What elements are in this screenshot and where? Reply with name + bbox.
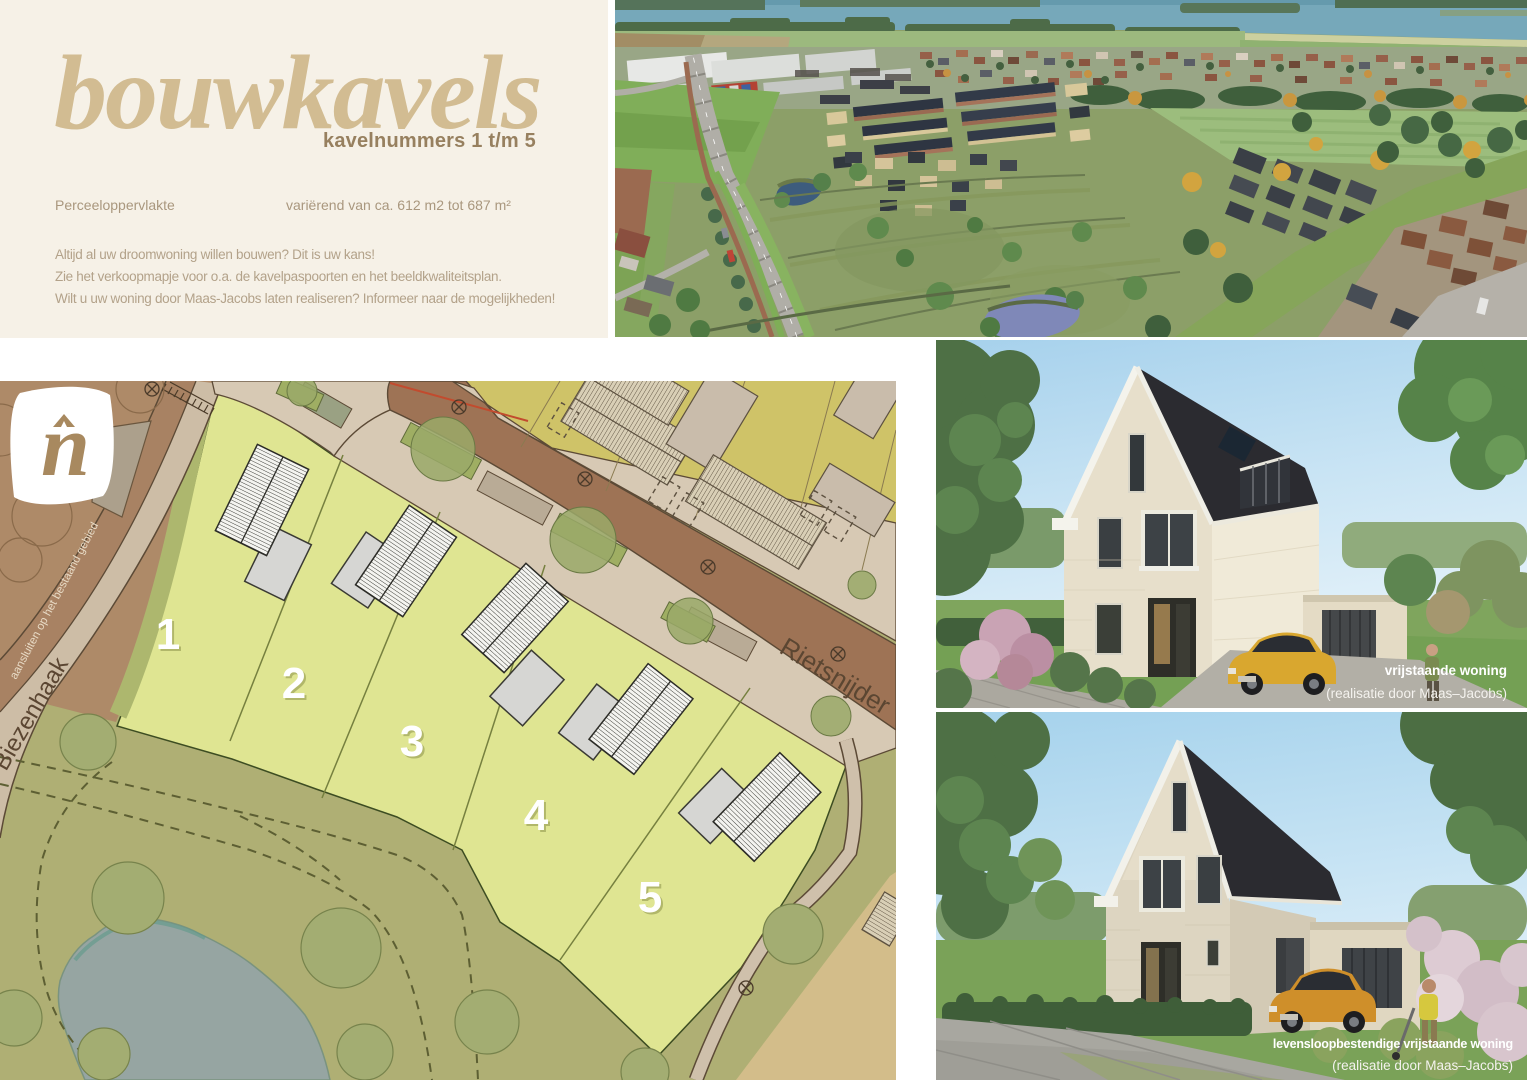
svg-text:levensloopbestendige vrijstaan: levensloopbestendige vrijstaande woning [1273, 1037, 1513, 1051]
svg-text:n: n [41, 398, 90, 495]
svg-text:3: 3 [400, 717, 424, 766]
svg-text:4: 4 [524, 791, 549, 840]
svg-text:5: 5 [638, 873, 662, 922]
svg-text:(realisatie door Maas–Jacobs): (realisatie door Maas–Jacobs) [1326, 686, 1507, 701]
svg-text:2: 2 [282, 659, 306, 708]
svg-text:1: 1 [156, 610, 180, 659]
svg-text:(realisatie door Maas–Jacobs): (realisatie door Maas–Jacobs) [1332, 1058, 1513, 1073]
svg-text:vrijstaande woning: vrijstaande woning [1385, 663, 1507, 678]
